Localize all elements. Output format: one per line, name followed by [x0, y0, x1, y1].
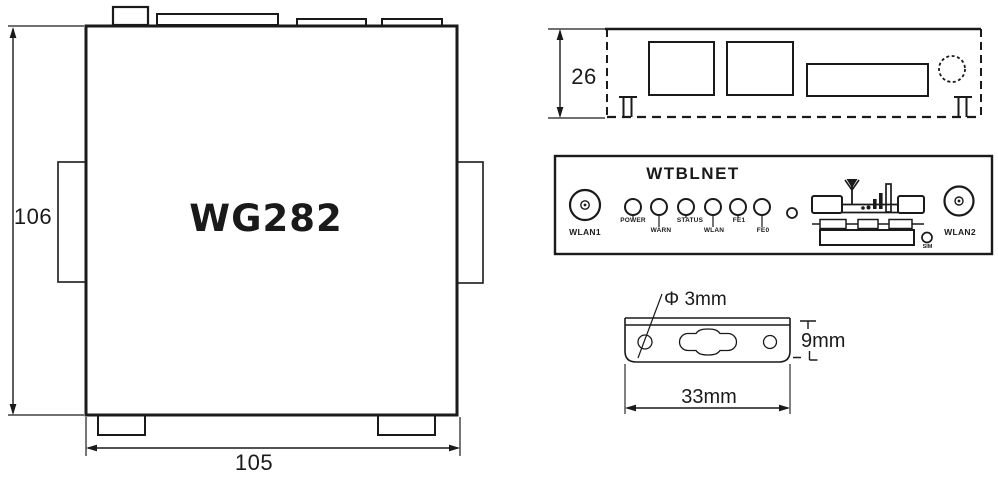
wlan2-label: WLAN2	[938, 228, 982, 237]
width-dimension-label: 105	[213, 451, 295, 474]
bottom-foot-right	[378, 415, 435, 435]
model-label: WG282	[170, 200, 362, 239]
slot-cutout	[807, 64, 928, 96]
bracket-height-dimension-label: 9mm	[801, 331, 845, 352]
arrow-right-icon	[449, 445, 460, 452]
led-fe1-label: FE1	[719, 218, 759, 225]
arrow-left-icon	[86, 445, 97, 452]
hole-leader-line	[638, 294, 662, 358]
antenna-hole-icon	[939, 56, 965, 82]
height-dimension-label: 106	[12, 205, 54, 228]
linework-canvas	[0, 0, 998, 478]
side-height-dimension-label: 26	[566, 65, 602, 88]
top-tab-1	[113, 7, 148, 25]
arrow-up-icon	[10, 27, 17, 38]
port-cutout-2	[727, 42, 793, 95]
bracket-center-cutout	[680, 329, 737, 355]
led-status-label: STATUS	[670, 218, 710, 225]
bottom-foot-left	[98, 415, 145, 435]
side-tab-left	[58, 162, 86, 282]
arrow-left-icon	[625, 405, 636, 412]
top-tab-2	[157, 14, 278, 25]
wlan1-label: WLAN1	[563, 228, 607, 237]
port-cutout-1	[649, 42, 714, 95]
bracket-hole-right	[764, 336, 777, 349]
arrow-down-icon	[557, 107, 564, 118]
brand-label: WTBLNET	[637, 165, 749, 183]
sim-label: SIM	[919, 245, 936, 251]
mounting-lug-left	[619, 97, 637, 117]
led-fe0-label: FE0	[743, 228, 783, 235]
side-tab-right	[457, 162, 483, 283]
arrow-down-icon	[10, 404, 17, 415]
front-panel-outline	[555, 156, 992, 254]
bracket-width-dimension-label: 33mm	[680, 387, 738, 408]
led-warn-label: WARN	[641, 228, 681, 235]
led-wlan-label: WLAN	[694, 228, 734, 235]
device-dimension-drawing: WG282 106 105 26 WTBLNET WLAN1 WLAN2 POW…	[0, 0, 998, 478]
arrow-right-icon	[779, 405, 790, 412]
led-power-label: POWER	[613, 218, 653, 225]
side-view-drawing	[548, 29, 981, 118]
bracket-hole-left	[638, 335, 652, 349]
bracket-hole-dimension-label: Φ 3mm	[664, 290, 727, 310]
arrow-up-icon	[557, 29, 564, 40]
mounting-lug-right	[954, 97, 972, 117]
front-panel-drawing	[555, 156, 992, 254]
